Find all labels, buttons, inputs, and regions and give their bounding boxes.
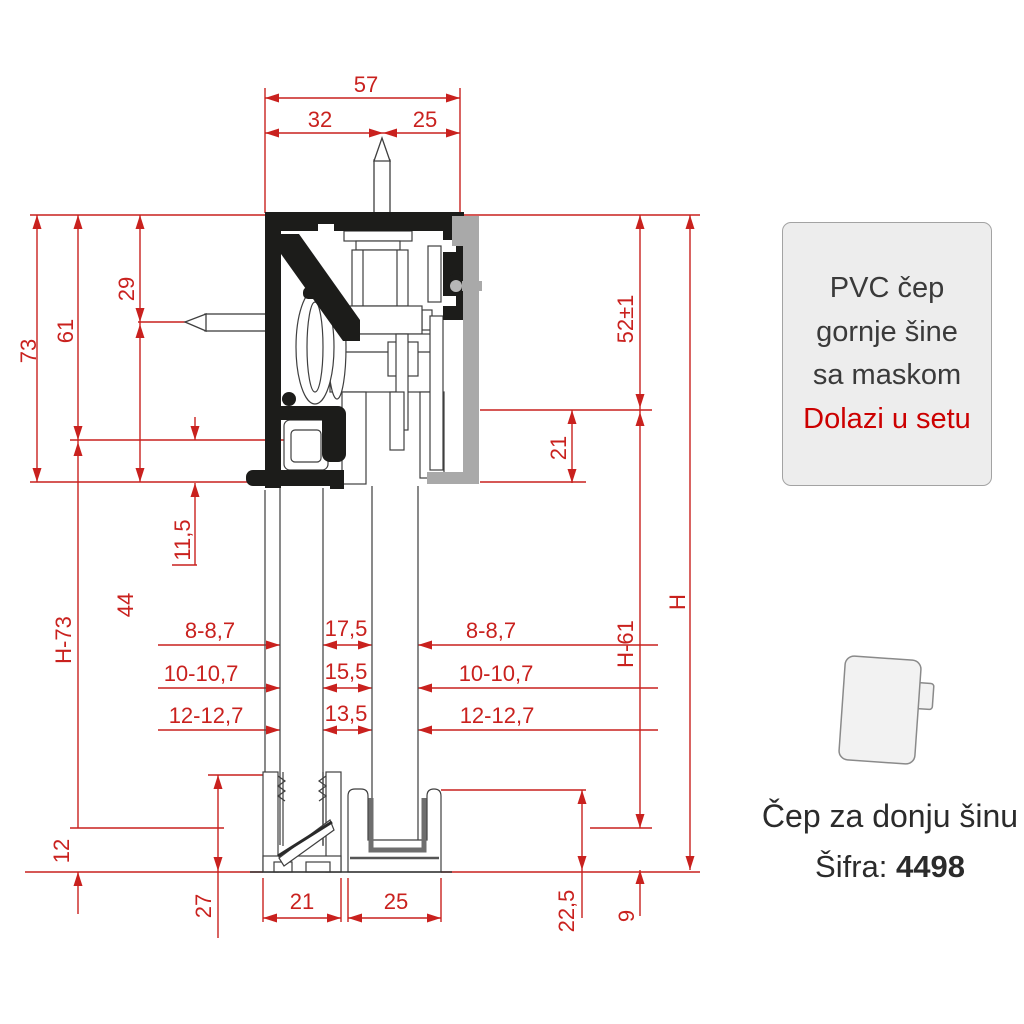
dim-glass-left-r2: 10-10,7 [164,663,239,685]
info-box: PVC čep gornje šine sa maskom Dolazi u s… [782,222,992,486]
dim-gap-r3: 13,5 [325,703,368,725]
caption-code-label: Šifra: [815,849,887,884]
dim-floor-gap: 9 [616,910,638,922]
dim-width-left: 32 [308,109,332,131]
dim-overall-width: 57 [354,74,378,96]
dim-glass-right-r1: 8-8,7 [466,620,516,642]
info-box-line2: gornje šine [816,311,958,355]
dim-hanger-height: 52±1 [615,295,637,344]
dim-screw-top: 29 [116,277,138,301]
dim-door-height-right: H-61 [615,620,637,668]
caption-code: Šifra: 4498 [758,849,1022,885]
dim-glass-right-r3: 12-12,7 [460,705,535,727]
end-cap-icon [820,640,960,790]
dim-inner-height: 61 [55,319,77,343]
dim-glass-right-r2: 10-10,7 [459,663,534,685]
dim-gap-r2: 15,5 [325,661,368,683]
fixed-panel-floor-guide [263,772,341,872]
caption-code-value: 4498 [896,849,965,884]
dim-channel-depth: 11,5 [172,519,194,560]
dim-gap-r1: 17,5 [325,618,368,640]
info-box-line1: PVC čep [830,267,944,311]
dim-clearance: 12 [51,839,73,863]
caption-title: Čep za donju šinu [758,800,1022,832]
dim-bottom-guide-right: 25 [384,891,408,913]
dim-guide-height-right: 22,5 [556,890,578,933]
dim-screw-bottom: 44 [115,593,137,617]
dim-hanger-gap: 21 [548,436,570,460]
dim-door-height-left: H-73 [53,616,75,664]
dim-profile-height: 73 [18,339,40,363]
info-box-line3: sa maskom [813,354,961,398]
technical-drawing-page: 57 32 25 73 61 29 44 11,5 H-73 12 27 8-8… [0,0,1024,1024]
info-box-note: Dolazi u setu [803,398,971,442]
caption: Čep za donju šinu Šifra: 4498 [758,800,1022,885]
dim-glass-left-r3: 12-12,7 [169,705,244,727]
dim-bottom-guide-left: 21 [290,891,314,913]
dim-guide-height-left: 27 [193,894,215,918]
sliding-panel-floor-guide [348,789,441,872]
dim-width-right: 25 [413,109,437,131]
dim-total-height: H [667,594,689,610]
dim-glass-left-r1: 8-8,7 [185,620,235,642]
